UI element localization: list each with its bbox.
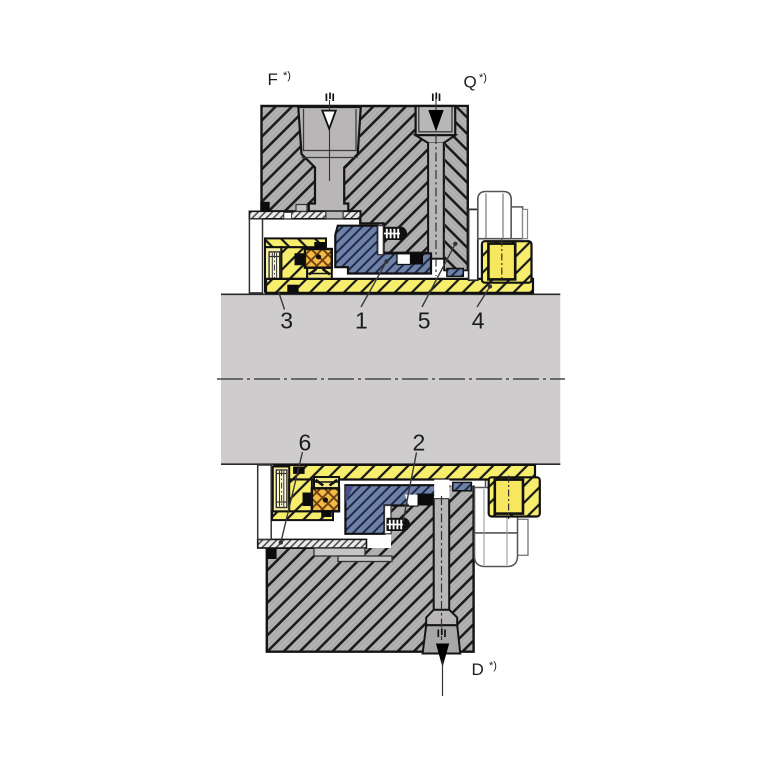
svg-text:F: F — [268, 70, 278, 89]
svg-text:5: 5 — [418, 308, 431, 334]
svg-text:*): *) — [489, 660, 497, 672]
svg-text:*): *) — [479, 72, 487, 84]
svg-text:*): *) — [283, 70, 291, 82]
svg-text:3: 3 — [280, 308, 293, 334]
svg-text:4: 4 — [472, 308, 485, 334]
svg-text:1: 1 — [355, 308, 368, 334]
svg-text:6: 6 — [299, 430, 312, 456]
svg-text:D: D — [472, 660, 484, 679]
svg-text:Q: Q — [464, 73, 477, 92]
svg-text:2: 2 — [413, 430, 426, 456]
